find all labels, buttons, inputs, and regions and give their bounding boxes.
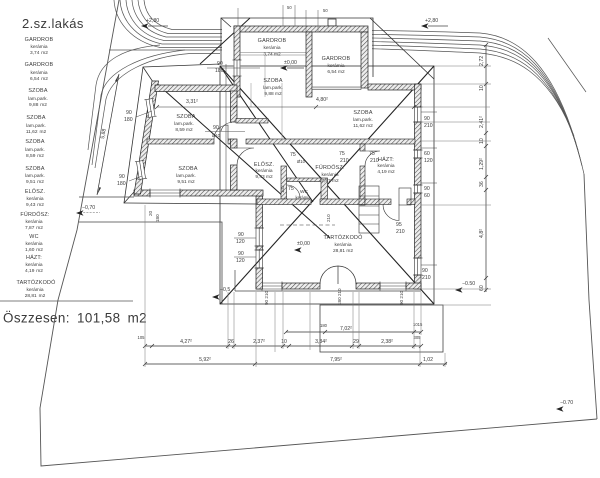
svg-text:5,88: 5,88 [100,128,108,139]
svg-text:7,02²: 7,02² [340,326,352,332]
svg-text:lam.park.: lam.park. [353,117,373,123]
svg-text:90: 90 [422,268,428,274]
svg-text:1,29²: 1,29² [479,158,485,170]
svg-text:SZOBA: SZOBA [25,166,44,172]
svg-text:10: 10 [281,339,287,345]
svg-text:180: 180 [320,323,328,328]
svg-text:60: 60 [424,151,430,157]
svg-text:28,81 m2: 28,81 m2 [25,293,46,299]
svg-text:210: 210 [424,123,433,129]
svg-text:90: 90 [238,251,244,257]
svg-text:75: 75 [288,186,294,192]
svg-text:90: 90 [424,186,430,192]
svg-text:75: 75 [290,152,296,158]
svg-text:kerámia: kerámia [263,45,280,51]
svg-text:10: 10 [479,85,485,91]
svg-text:4,80²: 4,80² [316,97,328,103]
svg-text:120: 120 [236,258,245,264]
svg-text:lam.park.: lam.park. [174,121,194,127]
svg-text:9,51 m2: 9,51 m2 [177,179,195,185]
svg-text:26: 26 [228,339,234,345]
svg-text:SZOBA: SZOBA [178,166,197,172]
svg-text:1,60 m2: 1,60 m2 [25,247,43,253]
svg-text:90: 90 [217,61,223,67]
svg-text:9,88 m2: 9,88 m2 [29,102,47,108]
svg-text:4,27²: 4,27² [180,339,192,345]
svg-text:kerámia: kerámia [25,262,42,268]
svg-text:9,51 m2: 9,51 m2 [26,179,44,185]
svg-text:3,74 m2: 3,74 m2 [263,52,281,58]
svg-text:kerámia: kerámia [26,196,43,202]
svg-text:2,37²: 2,37² [253,339,265,345]
svg-text:90: 90 [119,174,125,180]
svg-text:kerámia: kerámia [25,219,42,225]
svg-text:FÜRDŐSZ:: FÜRDŐSZ: [315,164,344,171]
svg-text:SZOBA: SZOBA [26,115,45,121]
svg-text:20: 20 [148,210,153,216]
svg-text:9,43 m2: 9,43 m2 [255,174,273,180]
svg-text:180 210: 180 210 [337,288,342,305]
svg-text:kerámia: kerámia [321,172,338,178]
svg-text:2,38²: 2,38² [381,339,393,345]
svg-text:2,72: 2,72 [479,56,485,66]
svg-text:7,87 m2: 7,87 m2 [321,178,339,184]
svg-text:120: 120 [424,158,433,164]
svg-text:−0,70: −0,70 [82,205,95,211]
svg-text:95: 95 [396,222,402,228]
svg-text:11,62 m2: 11,62 m2 [353,123,373,129]
svg-text:lam.park.: lam.park. [176,173,196,179]
svg-text:SZOBA: SZOBA [176,114,195,120]
svg-text:2.sz.lakás: 2.sz.lakás [22,16,84,31]
svg-text:SZOBA: SZOBA [25,139,44,145]
svg-text:8,59 m2: 8,59 m2 [175,127,193,133]
svg-text:−0.50: −0.50 [462,281,475,287]
svg-text:HÁZT:: HÁZT: [378,156,394,163]
svg-text:kerámia: kerámia [25,241,42,247]
svg-text:3,31²: 3,31² [186,99,198,105]
svg-text:TARTÓZKODÓ: TARTÓZKODÓ [17,279,56,286]
svg-text:180: 180 [117,181,126,187]
svg-text:lam.park.: lam.park. [263,85,283,91]
svg-text:105: 105 [138,335,146,340]
svg-text:36: 36 [479,181,485,187]
svg-text:kerámia: kerámia [296,195,312,200]
svg-text:kerámia: kerámia [334,242,351,248]
svg-text:Ø10: Ø10 [297,159,306,164]
svg-text:90: 90 [238,232,244,238]
svg-text:HÁZT:: HÁZT: [26,254,42,261]
svg-text:90: 90 [126,110,132,116]
svg-text:4,8²: 4,8² [479,229,485,238]
svg-text:180: 180 [124,117,133,123]
svg-text:60: 60 [479,285,485,291]
svg-text:5,92²: 5,92² [199,357,211,363]
svg-text:180: 180 [155,214,160,222]
svg-text:90 210: 90 210 [264,291,269,305]
svg-text:GARDROB: GARDROB [25,37,54,43]
svg-text:1,02: 1,02 [423,357,433,363]
svg-text:lam.park.: lam.park. [26,123,46,129]
svg-text:kerámia: kerámia [327,63,344,69]
svg-text:lam.park.: lam.park. [28,96,48,102]
svg-text:50: 50 [323,8,328,13]
svg-text:SZOBA: SZOBA [28,88,47,94]
svg-text:210: 210 [326,214,331,222]
svg-text:4,19 m2: 4,19 m2 [25,268,43,274]
svg-text:1015: 1015 [413,322,423,327]
svg-text:±0,00: ±0,00 [284,60,297,66]
svg-text:GARDROB: GARDROB [25,62,54,68]
svg-text:11,62 m2: 11,62 m2 [26,129,47,135]
svg-text:kerámia: kerámia [26,287,43,293]
svg-text:SZOBA: SZOBA [353,110,372,116]
svg-text:−0.70: −0.70 [560,400,573,406]
svg-text:ELŐSZ.: ELŐSZ. [254,161,274,168]
svg-text:29: 29 [353,339,359,345]
svg-text:ELŐSZ.: ELŐSZ. [25,188,45,195]
svg-text:kerámia: kerámia [30,70,47,76]
svg-text:Öszzesen: 101,58 m2: Öszzesen: 101,58 m2 [3,311,147,326]
svg-text:7,87 m2: 7,87 m2 [25,225,43,231]
svg-text:kerámia: kerámia [377,163,394,169]
svg-text:210: 210 [370,158,379,164]
svg-text:lam.park.: lam.park. [25,147,45,153]
svg-text:7,95²: 7,95² [330,357,342,363]
svg-text:4,19 m2: 4,19 m2 [377,169,395,175]
svg-text:90 210: 90 210 [399,291,404,305]
svg-text:180: 180 [215,68,224,74]
svg-text:3,74 m2: 3,74 m2 [30,50,48,56]
svg-text:kerámia: kerámia [255,168,272,174]
svg-text:lam.park.: lam.park. [25,173,45,179]
svg-text:75: 75 [369,151,375,157]
svg-text:+2,80: +2,80 [425,18,438,24]
svg-text:SZOBA: SZOBA [263,78,282,84]
svg-text:TARTÓZKODÓ: TARTÓZKODÓ [324,234,363,241]
svg-text:Ø10: Ø10 [212,133,221,138]
svg-text:GARDROB: GARDROB [258,38,287,44]
svg-text:−0,5: −0,5 [220,287,230,293]
svg-text:120: 120 [236,239,245,245]
svg-text:50: 50 [287,5,292,10]
svg-text:210: 210 [340,158,349,164]
svg-text:6,54 m2: 6,54 m2 [30,76,48,82]
svg-text:9,88 m2: 9,88 m2 [264,91,282,97]
svg-text:60: 60 [424,193,430,199]
svg-text:3,34²: 3,34² [315,339,327,345]
svg-text:+2,80: +2,80 [146,18,159,24]
svg-text:210: 210 [396,229,405,235]
svg-text:kerámia: kerámia [30,44,47,50]
svg-text:75: 75 [339,151,345,157]
svg-text:8,59 m2: 8,59 m2 [26,153,44,159]
svg-text:6,54 m2: 6,54 m2 [327,69,345,75]
svg-text:GARDROB: GARDROB [322,56,351,62]
svg-text:WC: WC [29,234,38,240]
svg-text:9,43 m2: 9,43 m2 [26,202,44,208]
svg-text:102: 102 [280,185,285,193]
svg-text:210: 210 [422,275,431,281]
svg-text:28,81 m2: 28,81 m2 [333,248,353,254]
svg-text:90: 90 [424,116,430,122]
svg-text:±0,00: ±0,00 [297,241,310,247]
svg-text:FÜRDŐSZ:: FÜRDŐSZ: [20,211,49,218]
svg-text:90: 90 [213,125,219,131]
